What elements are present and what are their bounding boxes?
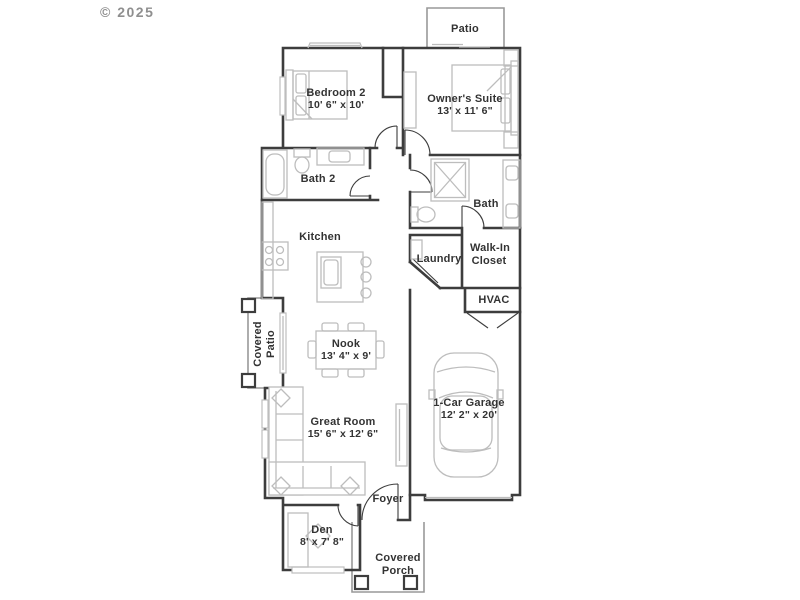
bath2-label: Bath 2 <box>301 173 336 185</box>
great-room-dims: 15' 6" x 12' 6" <box>308 428 379 440</box>
vanity-icon <box>503 160 520 228</box>
bath-door-icon <box>410 170 432 192</box>
bath2-door-icon <box>350 176 370 196</box>
shower-icon <box>431 159 469 201</box>
great-room-label: Great Room <box>311 416 376 428</box>
bedroom2-label: Bedroom 2 <box>306 87 365 99</box>
walk-in-closet-label-line1: Walk-In <box>470 242 510 254</box>
porch-post-icon <box>355 576 368 589</box>
builtin-niche-icon <box>396 404 407 466</box>
foyer-label: Foyer <box>373 493 404 505</box>
laundry-label: Laundry <box>417 253 462 265</box>
bedroom2-dims: 10' 6" x 10' <box>308 99 364 111</box>
furniture-layer <box>262 50 520 567</box>
sink-counter-icon <box>317 148 364 165</box>
covered-porch-label-line2: Porch <box>382 565 414 577</box>
patio-label: Patio <box>451 23 479 35</box>
patio-slider-icon <box>432 45 490 48</box>
bathtub-icon <box>263 150 287 198</box>
bedroom2-window-icon <box>280 77 285 115</box>
bath-label: Bath <box>473 198 498 210</box>
den-label: Den <box>311 524 332 536</box>
nook-label: Nook <box>332 338 361 350</box>
covered-porch-label-line1: Covered <box>375 552 420 564</box>
copyright-text: © 2025 <box>100 4 154 20</box>
floor-plan-page: © 2025 Patio Bedroom 2 10' 6" x 10' Owne… <box>0 0 800 600</box>
porch-post-icon <box>404 576 417 589</box>
patio-post-icon <box>242 299 255 312</box>
toilet-icon <box>411 207 435 222</box>
toilet-icon <box>294 149 310 173</box>
den-dims: 8' x 7' 8" <box>300 536 344 548</box>
hvac-label: HVAC <box>478 294 509 306</box>
great-room-window-icon <box>262 400 268 428</box>
nook-dims: 13' 4" x 9' <box>321 350 371 362</box>
range-icon <box>262 242 288 270</box>
covered-patio-label-line1: Covered <box>252 321 264 366</box>
hvac-doors-icon <box>467 313 518 328</box>
owners-suite-label: Owner's Suite <box>427 93 503 105</box>
dresser-icon <box>404 72 416 128</box>
den-window-icon <box>292 567 344 573</box>
den-door-icon <box>338 505 358 526</box>
owners-suite-door-icon <box>405 130 430 155</box>
garage-dims: 12' 2" x 20' <box>441 409 497 421</box>
patio-post-icon <box>242 374 255 387</box>
owners-suite-dims: 13' x 11' 6" <box>437 105 493 117</box>
covered-patio-label-line2: Patio <box>265 330 277 358</box>
kitchen-label: Kitchen <box>299 231 341 243</box>
bedroom2-door-icon <box>375 126 397 148</box>
great-room-window-icon <box>262 430 268 458</box>
walk-in-closet-label-line2: Closet <box>472 255 507 267</box>
sofa-icon <box>269 387 365 495</box>
kitchen-counter-icon <box>262 202 273 299</box>
floor-plan: © 2025 Patio Bedroom 2 10' 6" x 10' Owne… <box>0 0 800 600</box>
garage-label: 1-Car Garage <box>433 397 505 409</box>
kitchen-island-icon <box>317 252 371 302</box>
